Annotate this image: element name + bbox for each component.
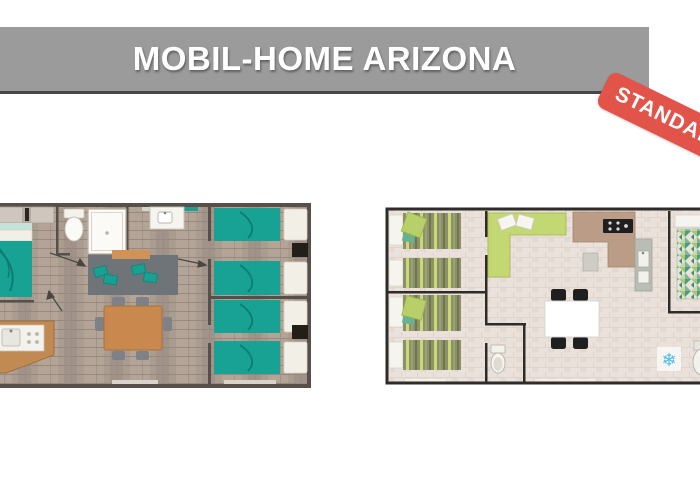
air-conditioning: ❄: [657, 347, 681, 371]
twin-beds: [214, 208, 308, 374]
sofa-back-shelf: [112, 250, 150, 259]
single-bed-4: [214, 341, 307, 374]
sofa: [88, 250, 178, 295]
wardrobe: [0, 207, 54, 223]
snowflake-icon: ❄: [661, 350, 676, 370]
single-bed-1: [214, 208, 307, 241]
floor-plan-left: [0, 203, 312, 388]
mosaic-bed: [677, 229, 700, 299]
fridge: [583, 253, 598, 271]
page-title: MOBIL-HOME ARIZONA: [133, 40, 517, 78]
master-bed: [0, 223, 32, 297]
cooktop: [603, 219, 633, 233]
floor-plan-right: ❄: [385, 207, 700, 385]
nightstand-2: [292, 325, 308, 339]
bed-pillow-shelf: [675, 215, 700, 227]
toilet: [64, 209, 84, 241]
master-bedroom-wall: [668, 211, 671, 311]
nightstand-1: [292, 243, 308, 257]
bedroom-divider-wall: [211, 296, 309, 299]
single-bed-2: [214, 261, 307, 295]
washbasin: [150, 207, 184, 229]
single-bed-3: [389, 295, 461, 331]
bedroom-divider-wall: [387, 291, 485, 294]
title-bar: MOBIL-HOME ARIZONA: [0, 27, 649, 94]
dining-table: [545, 301, 599, 337]
dining-table: [104, 306, 162, 350]
single-bed-4: [389, 340, 461, 370]
shower: [88, 209, 126, 254]
single-bed-2: [389, 258, 461, 288]
page: MOBIL-HOME ARIZONA STANDARD: [0, 0, 700, 500]
single-bed-1: [389, 212, 461, 249]
wc-toilet: [491, 345, 505, 373]
